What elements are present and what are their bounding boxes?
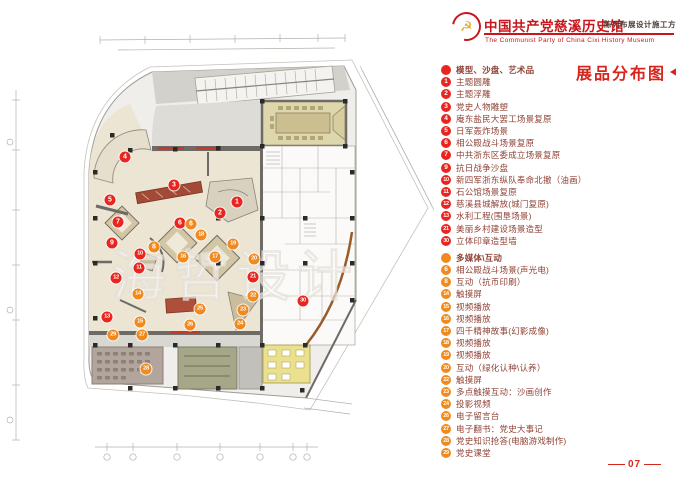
legend-item-label: 多点触摸互动：沙画创作 — [456, 386, 552, 398]
legend-item: 8互动（抗币印刷） — [441, 276, 671, 288]
legend-item-number-badge: 29 — [441, 448, 451, 458]
document-title: 中国共产党慈溪历史馆 — [484, 15, 624, 35]
page-number-block: 07 — [608, 459, 661, 470]
legend-item-label: 抗日战争沙盘 — [456, 162, 508, 174]
legend-item-label: 触摸屏 — [456, 374, 482, 386]
legend-item: 29党史课堂 — [441, 447, 671, 459]
legend-group-dot-icon — [441, 253, 451, 263]
legend-item: 14触摸屏 — [441, 288, 671, 300]
legend-item-number-badge: 24 — [441, 399, 451, 409]
legend-item-label: 党史人物雕塑 — [456, 101, 508, 113]
legend-item-number-badge: 15 — [441, 302, 451, 312]
legend-item-number-badge: 7 — [441, 150, 451, 160]
gray-room — [239, 347, 262, 389]
legend-item-label: 美丽乡村建设场景造型 — [456, 223, 543, 235]
legend-item-number-badge: 22 — [441, 375, 451, 385]
legend-item-number-badge: 20 — [441, 363, 451, 373]
legend-item-label: 党史课堂 — [456, 447, 491, 459]
legend-item-label: 立体印章造型墙 — [456, 235, 517, 247]
legend-item-number-badge: 6 — [441, 138, 451, 148]
legend-item-label: 视频播放 — [456, 337, 491, 349]
legend-item: 7中共浙东区委成立场景复原 — [441, 149, 671, 161]
legend-item-label: 相公殿战斗场景(声光电) — [456, 264, 549, 276]
legend-item-label: 主题圆雕 — [456, 76, 491, 88]
legend-item: 27电子翻书：党史大事记 — [441, 422, 671, 434]
legend-item-number-badge: 2 — [441, 89, 451, 99]
legend-item-number-badge: 12 — [441, 199, 451, 209]
olive-room — [178, 347, 237, 389]
legend-item-number-badge: 18 — [441, 338, 451, 348]
legend-item-number-badge: 17 — [441, 326, 451, 336]
legend-item-number-badge: 14 — [441, 289, 451, 299]
legend-item-number-badge: 13 — [441, 211, 451, 221]
page-number: 07 — [628, 459, 641, 470]
legend-item-label: 互动（抗币印刷） — [456, 276, 526, 288]
legend-item: 22触摸屏 — [441, 374, 671, 386]
legend-item: 9抗日战争沙盘 — [441, 162, 671, 174]
legend-item-label: 视频播放 — [456, 301, 491, 313]
legend-groups: 模型、沙盘、艺术品1主题圆雕2主题浮雕3党史人物雕塑4庵东盐民大罢工场景复原5日… — [441, 64, 671, 459]
dash-left — [608, 464, 625, 466]
legend-item: 30立体印章造型墙 — [441, 235, 671, 247]
legend-item: 28党史知识抢答(电脑游戏制作) — [441, 435, 671, 447]
legend-group-label: 多媒体\互动 — [456, 252, 502, 264]
legend-item: 6相公殿战斗场景复原 — [441, 137, 671, 149]
legend-group-dot-icon — [441, 65, 451, 75]
legend-item-label: 新四军浙东纵队奉命北撤（油画） — [456, 174, 587, 186]
legend-item: 21美丽乡村建设场景造型 — [441, 222, 671, 234]
classroom-room — [92, 347, 163, 384]
legend-item-number-badge: 16 — [441, 314, 451, 324]
conference-table — [276, 113, 330, 133]
legend-item: 19视频播放 — [441, 349, 671, 361]
legend-item-number-badge: 27 — [441, 424, 451, 434]
office-room — [263, 345, 310, 383]
upper-corridor — [152, 100, 262, 152]
header-rule — [484, 33, 674, 35]
legend-item-number-badge: 19 — [441, 350, 451, 360]
legend-item: 26电子留言台 — [441, 410, 671, 422]
legend-item: 3党史人物雕塑 — [441, 101, 671, 113]
legend-item: 6相公殿战斗场景(声光电) — [441, 264, 671, 276]
legend-item: 15视频播放 — [441, 301, 671, 313]
legend-item: 18视频播放 — [441, 337, 671, 349]
legend-item-number-badge: 3 — [441, 102, 451, 112]
legend-item: 12慈溪县城解放(城门复原) — [441, 198, 671, 210]
legend-item: 23多点触摸互动：沙画创作 — [441, 386, 671, 398]
legend-group-label: 模型、沙盘、艺术品 — [456, 64, 534, 76]
legend-item-label: 石公馆场景复原 — [456, 186, 517, 198]
legend-item-label: 电子翻书：党史大事记 — [456, 423, 543, 435]
legend-item-number-badge: 9 — [441, 163, 451, 173]
legend-item-number-badge: 10 — [441, 175, 451, 185]
legend-item-number-badge: 4 — [441, 114, 451, 124]
watermark: 海哲设计 — [112, 247, 360, 307]
legend-item-label: 投影视频 — [456, 398, 491, 410]
legend-item-label: 视频播放 — [456, 349, 491, 361]
legend-item: 2主题浮雕 — [441, 88, 671, 100]
legend-item-number-badge: 8 — [441, 277, 451, 287]
legend-group-header: 多媒体\互动 — [441, 252, 671, 264]
legend-item-label: 互动（绿化认种\认养） — [456, 362, 546, 374]
legend-item-number-badge: 23 — [441, 387, 451, 397]
legend-item-number-badge: 26 — [441, 411, 451, 421]
legend-group-header: 模型、沙盘、艺术品 — [441, 64, 671, 76]
legend-item-number-badge: 1 — [441, 77, 451, 87]
legend-item-number-badge: 30 — [441, 236, 451, 246]
document-subtitle-en: The Communist Party of China Cixi Histor… — [485, 37, 654, 44]
legend-item-number-badge: 21 — [441, 224, 451, 234]
legend-item: 11石公馆场景复原 — [441, 186, 671, 198]
legend-item-label: 庵东盐民大罢工场景复原 — [456, 113, 552, 125]
legend-item-number-badge: 11 — [441, 187, 451, 197]
legend-item: 4庵东盐民大罢工场景复原 — [441, 113, 671, 125]
legend-item-label: 电子留言台 — [456, 410, 500, 422]
legend-item-number-badge: 6 — [441, 265, 451, 275]
legend-item: 10新四军浙东纵队奉命北撤（油画） — [441, 174, 671, 186]
legend-item: 24投影视频 — [441, 398, 671, 410]
legend-item-label: 中共浙东区委成立场景复原 — [456, 149, 560, 161]
legend-item-label: 相公殿战斗场景复原 — [456, 137, 534, 149]
legend-item-label: 四千精神故事(幻影成像) — [456, 325, 549, 337]
legend-item-label: 党史知识抢答(电脑游戏制作) — [456, 435, 566, 447]
legend-item: 17四千精神故事(幻影成像) — [441, 325, 671, 337]
conference-room — [262, 101, 346, 146]
legend-item: 1主题圆雕 — [441, 76, 671, 88]
legend-item: 20互动（绿化认种\认养） — [441, 362, 671, 374]
legend-item-label: 视频播放 — [456, 313, 491, 325]
dash-right — [644, 464, 661, 466]
legend-item: 16视频播放 — [441, 313, 671, 325]
legend-item-label: 水利工程(围垦场景) — [456, 210, 532, 222]
legend-item-label: 触摸屏 — [456, 288, 482, 300]
legend-item-label: 主题浮雕 — [456, 88, 491, 100]
legend-item: 5日军轰炸场景 — [441, 125, 671, 137]
legend-item-label: 慈溪县城解放(城门复原) — [456, 198, 549, 210]
legend-item-number-badge: 28 — [441, 436, 451, 446]
legend-item: 13水利工程(围垦场景) — [441, 210, 671, 222]
legend-item-number-badge: 5 — [441, 126, 451, 136]
legend-item-label: 日军轰炸场景 — [456, 125, 508, 137]
document-scheme-label: 陈列布展设计施工方案 — [604, 19, 676, 30]
